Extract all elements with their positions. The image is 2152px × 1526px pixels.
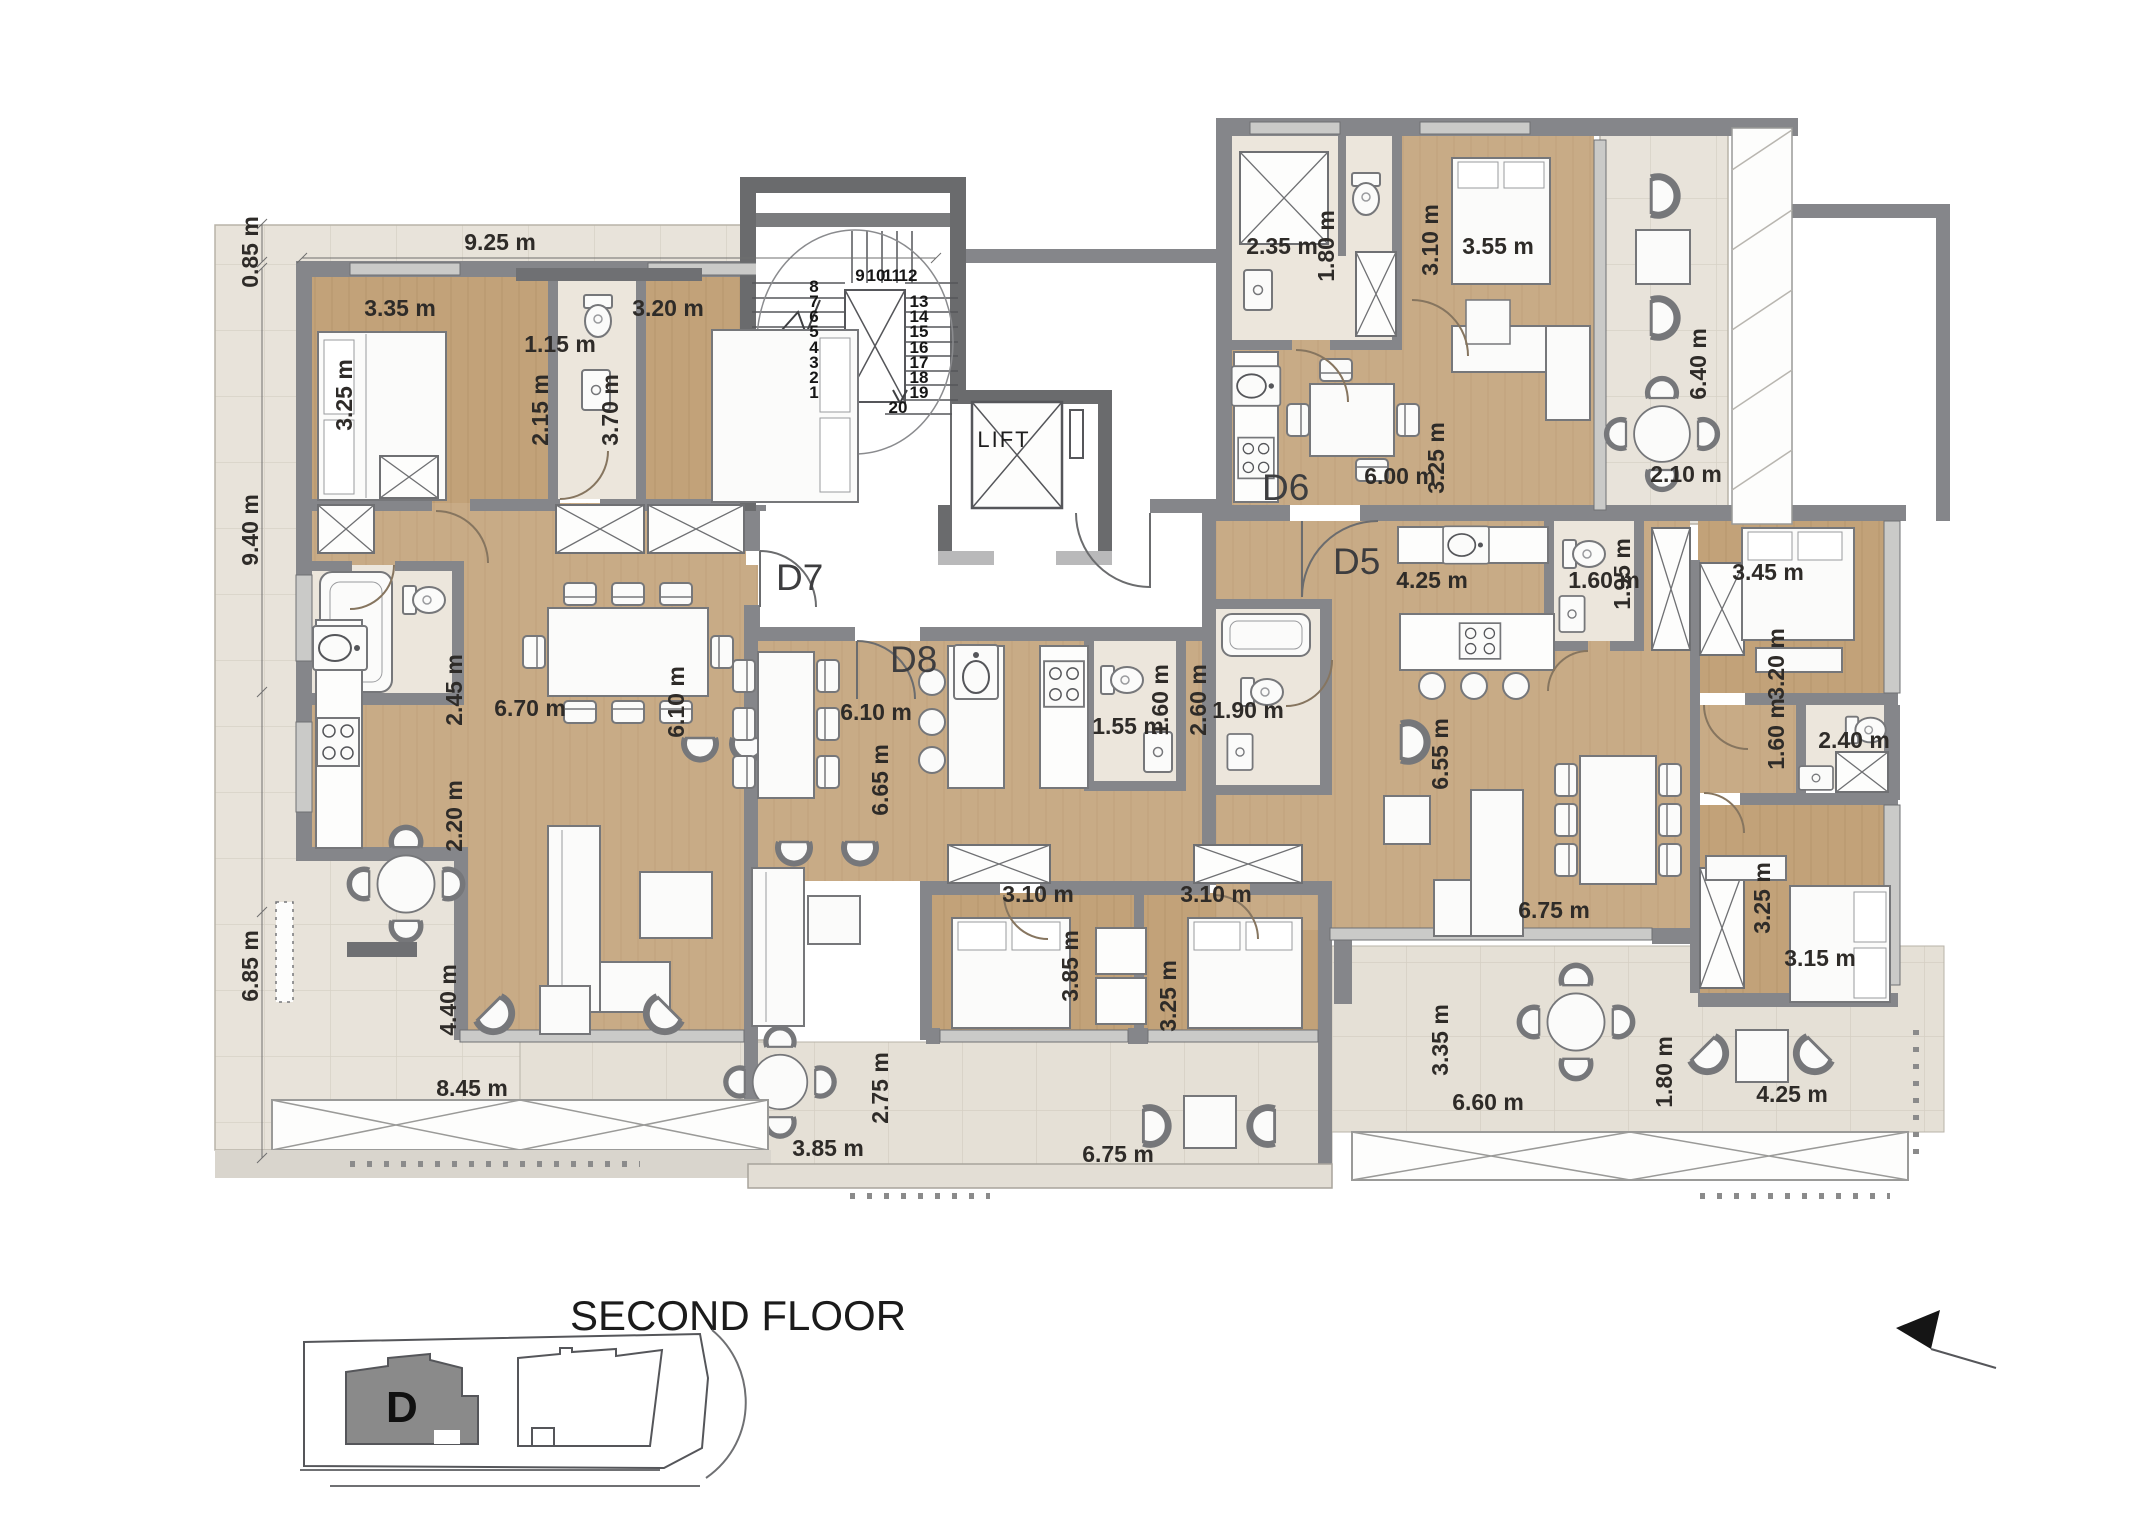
dimension-label: 9.40 m <box>237 494 263 566</box>
dimension-label: 3.10 m <box>1417 204 1443 276</box>
dimension-label: 2.75 m <box>867 1052 893 1124</box>
apartment-label-d5: D5 <box>1333 541 1380 582</box>
dimension-label: 3.25 m <box>331 359 357 431</box>
dimension-label: 3.35 m <box>364 295 436 321</box>
stair-step-number: 9 <box>855 266 864 285</box>
apartment-label-d6: D6 <box>1262 467 1309 508</box>
dimension-label: 3.55 m <box>1462 233 1534 259</box>
key-plan: D <box>300 1330 746 1486</box>
dimension-label: 3.20 m <box>1763 628 1789 700</box>
apartment-label-d7: D7 <box>776 557 823 598</box>
keyplan-building-label: D <box>386 1383 418 1432</box>
dimension-label: 4.25 m <box>1396 567 1468 593</box>
dimension-label: 1.15 m <box>524 331 596 357</box>
dimension-label: 3.10 m <box>1180 881 1252 907</box>
lift-label: LIFT <box>977 427 1030 452</box>
dimension-label: 2.10 m <box>1650 461 1722 487</box>
dimension-label: 6.55 m <box>1427 718 1453 790</box>
floor-plan-page: LIFT <box>0 0 2152 1526</box>
dimension-label: 0.85 m <box>237 216 263 288</box>
dimension-label: 3.85 m <box>792 1135 864 1161</box>
dimension-label: 2.35 m <box>1246 233 1318 259</box>
lift: LIFT <box>952 402 1098 551</box>
stair-step-number: 12 <box>899 266 918 285</box>
stair-step-number: 19 <box>910 383 929 402</box>
dimension-label: 6.10 m <box>663 666 689 738</box>
dimension-label: 3.10 m <box>1002 881 1074 907</box>
dimension-label: 3.25 m <box>1155 960 1181 1032</box>
dimension-label: 1.80 m <box>1651 1036 1677 1108</box>
dimension-label: 3.35 m <box>1427 1004 1453 1076</box>
dimension-label: 6.40 m <box>1685 328 1711 400</box>
north-arrow-icon <box>1896 1310 1996 1368</box>
dimension-label: 6.65 m <box>867 744 893 816</box>
dimension-label: 8.45 m <box>436 1075 508 1101</box>
dimension-label: 2.20 m <box>441 780 467 852</box>
dimension-label: 2.60 m <box>1185 664 1211 736</box>
floor-plan-svg: LIFT <box>0 0 2152 1526</box>
apartment-label-d8: D8 <box>890 639 937 680</box>
dimension-label: 3.15 m <box>1784 945 1856 971</box>
dimension-label: 2.40 m <box>1818 727 1890 753</box>
dimension-label: 6.70 m <box>494 695 566 721</box>
dimension-label: 1.95 m <box>1609 538 1635 610</box>
dimension-label: 2.45 m <box>441 654 467 726</box>
dimension-label: 4.25 m <box>1756 1081 1828 1107</box>
dimension-label: 6.60 m <box>1452 1089 1524 1115</box>
dimension-label: 3.70 m <box>597 374 623 446</box>
dimension-label: 6.75 m <box>1518 897 1590 923</box>
dimension-label: 3.85 m <box>1057 930 1083 1002</box>
dimension-label: 4.40 m <box>435 964 461 1036</box>
dimension-label: 3.20 m <box>632 295 704 321</box>
wardrobe-icon <box>380 456 438 498</box>
dimension-label: 3.25 m <box>1749 862 1775 934</box>
dimension-label: 2.15 m <box>527 374 553 446</box>
dimension-label: 6.75 m <box>1082 1141 1154 1167</box>
dimension-label: 1.80 m <box>1313 210 1339 282</box>
floor-title: SECOND FLOOR <box>570 1292 906 1339</box>
dimension-label: 9.25 m <box>464 229 536 255</box>
dimension-label: 1.60 m <box>1763 698 1789 770</box>
dimension-label: 1.90 m <box>1212 697 1284 723</box>
dimension-label: 1.60 m <box>1147 664 1173 736</box>
dimension-label: 3.45 m <box>1732 559 1804 585</box>
dimension-label: 6.85 m <box>237 930 263 1002</box>
stair-step-number: 8 <box>809 277 818 296</box>
dimension-label: 6.10 m <box>840 699 912 725</box>
dimension-label: 6.00 m <box>1364 463 1436 489</box>
stair-step-number: 20 <box>889 398 908 417</box>
